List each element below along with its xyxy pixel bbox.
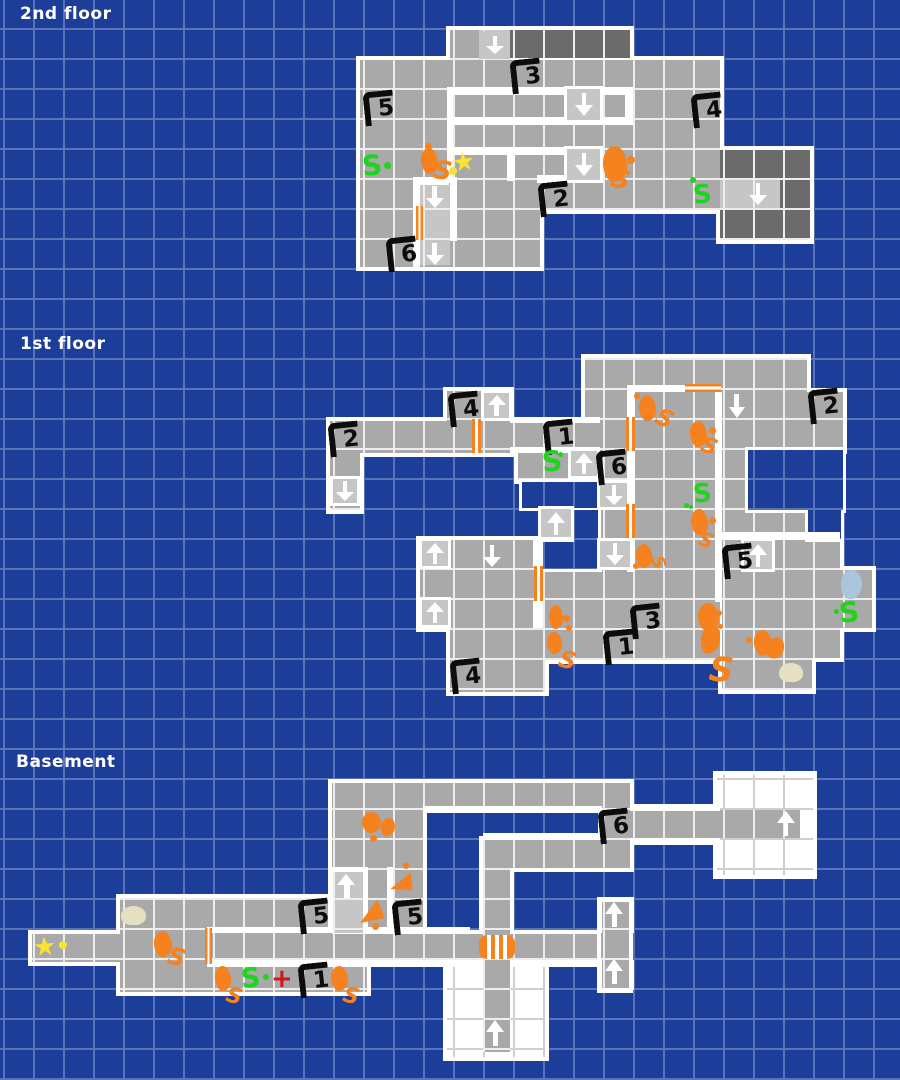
stairs-down-arrow-icon bbox=[482, 545, 502, 567]
courtyard-hole bbox=[574, 510, 598, 542]
orange-dot-icon bbox=[634, 393, 640, 399]
interior-wall bbox=[629, 960, 634, 990]
orange-dot-icon bbox=[746, 637, 752, 643]
green-s-icon: S bbox=[361, 151, 383, 181]
stairs-down-arrow-icon bbox=[574, 93, 594, 116]
green-s-icon: S bbox=[692, 181, 712, 208]
stairs-down-arrow-icon bbox=[604, 485, 624, 505]
green-dot-icon bbox=[263, 974, 269, 980]
interior-wall bbox=[625, 87, 633, 125]
interior-wall bbox=[510, 960, 597, 967]
stairs-up-arrow-icon bbox=[604, 959, 625, 984]
stairs-up-arrow-icon bbox=[574, 453, 594, 474]
orange-door-icon bbox=[416, 206, 423, 240]
stairs-down-arrow-icon bbox=[727, 394, 746, 418]
orange-dot-icon bbox=[716, 610, 722, 616]
interior-wall bbox=[450, 177, 457, 241]
stair-number-marker-4: 4 bbox=[690, 92, 723, 129]
dark-tiles bbox=[720, 208, 810, 240]
stair-number-marker-6: 6 bbox=[597, 808, 630, 845]
orange-dot-icon bbox=[709, 517, 716, 524]
interior-wall bbox=[597, 897, 602, 933]
stair-number-marker-6: 6 bbox=[595, 449, 628, 486]
interior-wall bbox=[629, 897, 634, 933]
yellow-dot-icon bbox=[59, 941, 67, 949]
beige-blob-icon bbox=[779, 663, 803, 682]
floor-tiles bbox=[207, 934, 597, 960]
interior-wall bbox=[363, 867, 368, 933]
interior-wall bbox=[387, 867, 393, 933]
orange-door-icon bbox=[534, 566, 543, 601]
stair-number-marker-6: 6 bbox=[385, 236, 418, 273]
green-s-icon: S bbox=[838, 598, 858, 627]
orange-dot-icon bbox=[403, 863, 409, 869]
stairs-down-arrow-icon bbox=[574, 153, 594, 176]
orange-dot-icon bbox=[566, 625, 572, 631]
courtyard-hole bbox=[543, 542, 599, 569]
floor-tiles bbox=[630, 810, 720, 838]
floor-label-1st-floor: 1st floor bbox=[20, 334, 105, 354]
orange-door-icon bbox=[626, 504, 635, 538]
stair-number-marker-5: 5 bbox=[721, 543, 754, 580]
interior-wall bbox=[328, 867, 368, 872]
yellow-dot-icon bbox=[449, 167, 457, 175]
interior-wall bbox=[423, 806, 602, 813]
green-s-icon: S bbox=[240, 964, 261, 993]
green-dot-icon bbox=[834, 609, 839, 614]
stairs-up-arrow-icon bbox=[604, 902, 625, 927]
floor-tiles bbox=[450, 30, 480, 60]
courtyard-hole bbox=[522, 482, 597, 508]
interior-wall bbox=[597, 960, 602, 990]
orange-door-icon bbox=[205, 928, 212, 964]
interior-wall bbox=[630, 804, 720, 811]
red-cross-icon: + bbox=[271, 966, 299, 992]
interior-wall bbox=[533, 540, 543, 567]
green-s-icon: S bbox=[692, 480, 712, 507]
orange-dot-icon bbox=[425, 143, 432, 150]
interior-wall bbox=[533, 601, 543, 628]
stair-number-marker-2: 2 bbox=[807, 388, 840, 425]
orange-door-icon bbox=[685, 384, 721, 392]
yellow-star-icon: ★ bbox=[32, 933, 63, 961]
stair-number-marker-1: 1 bbox=[602, 629, 635, 666]
stairs-down-arrow-icon bbox=[424, 243, 445, 265]
stair-number-marker-2: 2 bbox=[537, 181, 570, 218]
stairs-down-arrow-icon bbox=[748, 183, 768, 205]
orange-squiggle-icon: S bbox=[708, 652, 727, 687]
orange-striped-gate-icon bbox=[479, 935, 515, 959]
stair-number-marker-1: 1 bbox=[297, 962, 330, 999]
interior-wall bbox=[715, 392, 722, 602]
stair-number-marker-3: 3 bbox=[509, 58, 542, 95]
stairs-up-arrow-icon bbox=[425, 543, 445, 564]
stair-number-marker-2: 2 bbox=[327, 421, 360, 458]
interior-wall bbox=[722, 532, 840, 540]
dark-tiles bbox=[780, 180, 810, 208]
interior-wall bbox=[447, 117, 633, 125]
stairs-up-arrow-icon bbox=[425, 602, 445, 623]
stair-number-marker-4: 4 bbox=[447, 391, 480, 428]
green-dot-icon bbox=[689, 505, 693, 509]
orange-dot-icon bbox=[627, 156, 635, 164]
stair-number-marker-5: 5 bbox=[362, 90, 395, 127]
floor-maps-canvas: 2nd floor 1st floor Basement 53426S★SSS4… bbox=[0, 0, 900, 1080]
orange-dot-icon bbox=[563, 615, 570, 622]
interior-wall bbox=[507, 155, 515, 181]
interior-wall bbox=[597, 988, 633, 993]
stairs-up-arrow-icon bbox=[485, 1020, 506, 1046]
floor-label-2nd-floor: 2nd floor bbox=[20, 4, 111, 24]
stair-number-marker-3: 3 bbox=[629, 603, 662, 640]
beige-blob-icon bbox=[121, 906, 146, 925]
courtyard-hole bbox=[748, 450, 843, 510]
stair-number-marker-4: 4 bbox=[449, 658, 482, 695]
stair-number-marker-5: 5 bbox=[297, 898, 330, 935]
stairs-down-arrow-icon bbox=[424, 186, 445, 208]
green-dot-icon bbox=[384, 162, 391, 169]
orange-dot-icon bbox=[370, 835, 377, 842]
stairs-up-arrow-icon bbox=[776, 811, 796, 836]
orange-dot-icon bbox=[372, 923, 379, 930]
dark-tiles bbox=[510, 30, 630, 58]
stairs-up-arrow-icon bbox=[546, 512, 566, 535]
stairs-down-arrow-icon bbox=[485, 36, 505, 54]
stairs-up-arrow-icon bbox=[336, 874, 358, 898]
green-dot-icon bbox=[558, 452, 563, 457]
orange-door-icon bbox=[626, 417, 635, 451]
orange-dot-icon bbox=[718, 624, 723, 629]
floor-tiles bbox=[423, 783, 630, 808]
orange-dot-icon bbox=[633, 563, 639, 569]
interior-wall bbox=[630, 838, 720, 845]
stairs-down-arrow-icon bbox=[605, 543, 625, 565]
stair-number-marker-5: 5 bbox=[391, 899, 424, 936]
green-dot-icon bbox=[690, 177, 696, 183]
dark-tiles bbox=[720, 150, 810, 181]
interior-wall bbox=[483, 833, 603, 840]
floor-label-basement: Basement bbox=[16, 752, 116, 772]
stairs-up-arrow-icon bbox=[487, 395, 507, 416]
stairs-down-arrow-icon bbox=[335, 481, 355, 501]
